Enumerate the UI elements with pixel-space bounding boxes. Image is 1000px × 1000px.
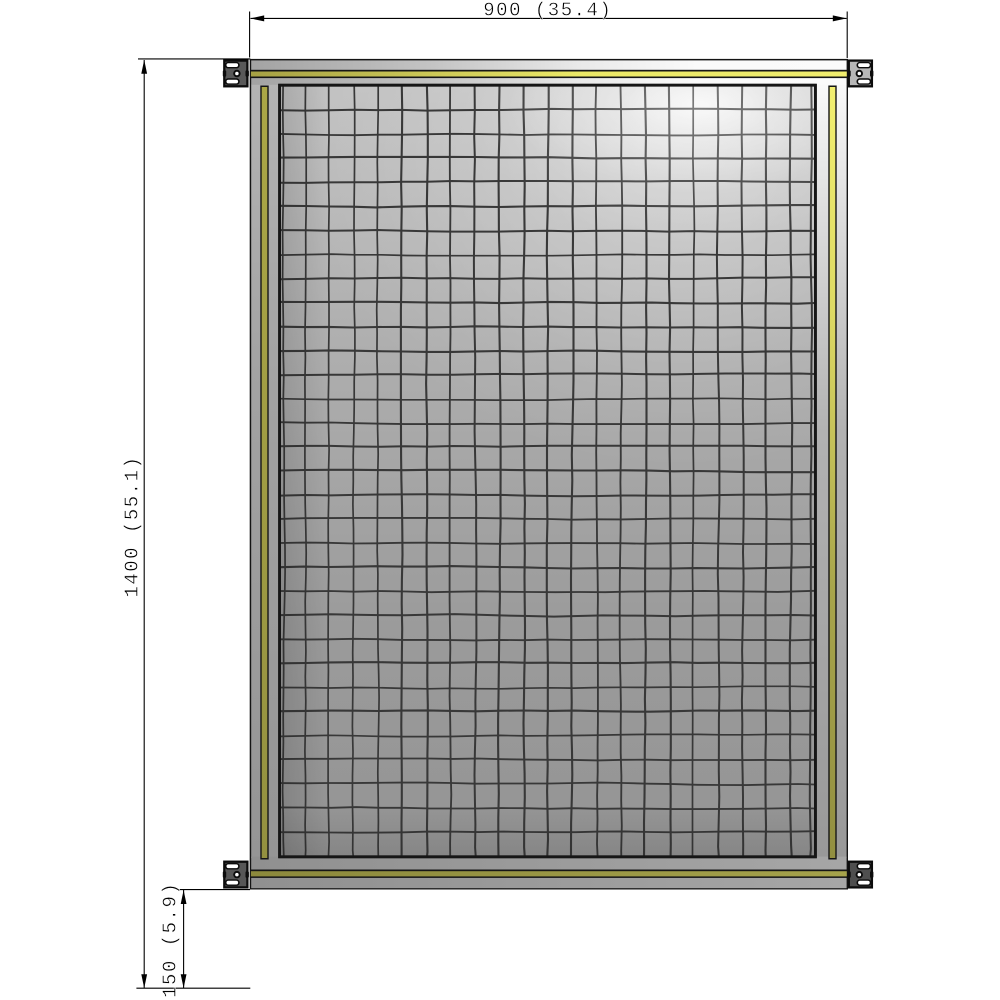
svg-text:900 (35.4): 900 (35.4) xyxy=(483,0,612,21)
svg-text:1400 (55.1): 1400 (55.1) xyxy=(122,456,144,598)
svg-text:150 (5.9): 150 (5.9) xyxy=(160,882,182,998)
